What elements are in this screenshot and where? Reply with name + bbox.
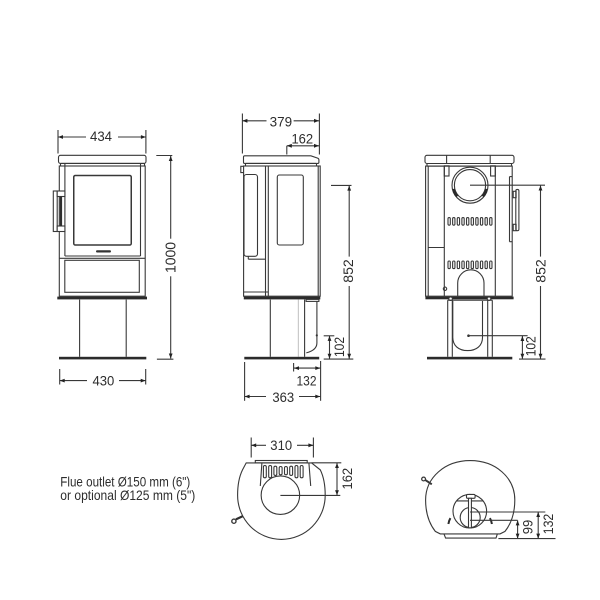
svg-text:363: 363 [272, 390, 294, 406]
svg-text:852: 852 [533, 259, 549, 283]
svg-text:430: 430 [93, 374, 115, 390]
svg-text:102: 102 [332, 337, 348, 357]
svg-text:379: 379 [270, 114, 293, 130]
svg-text:434: 434 [90, 129, 112, 145]
svg-text:310: 310 [270, 438, 292, 454]
svg-text:162: 162 [340, 468, 356, 490]
svg-text:99: 99 [521, 520, 537, 535]
svg-text:or optional Ø125 mm (5"): or optional Ø125 mm (5") [60, 487, 195, 503]
svg-text:162: 162 [291, 131, 313, 147]
svg-text:102: 102 [523, 336, 539, 356]
svg-text:1000: 1000 [164, 242, 180, 273]
svg-text:132: 132 [297, 373, 317, 389]
svg-text:852: 852 [341, 259, 357, 283]
svg-text:132: 132 [541, 514, 557, 535]
